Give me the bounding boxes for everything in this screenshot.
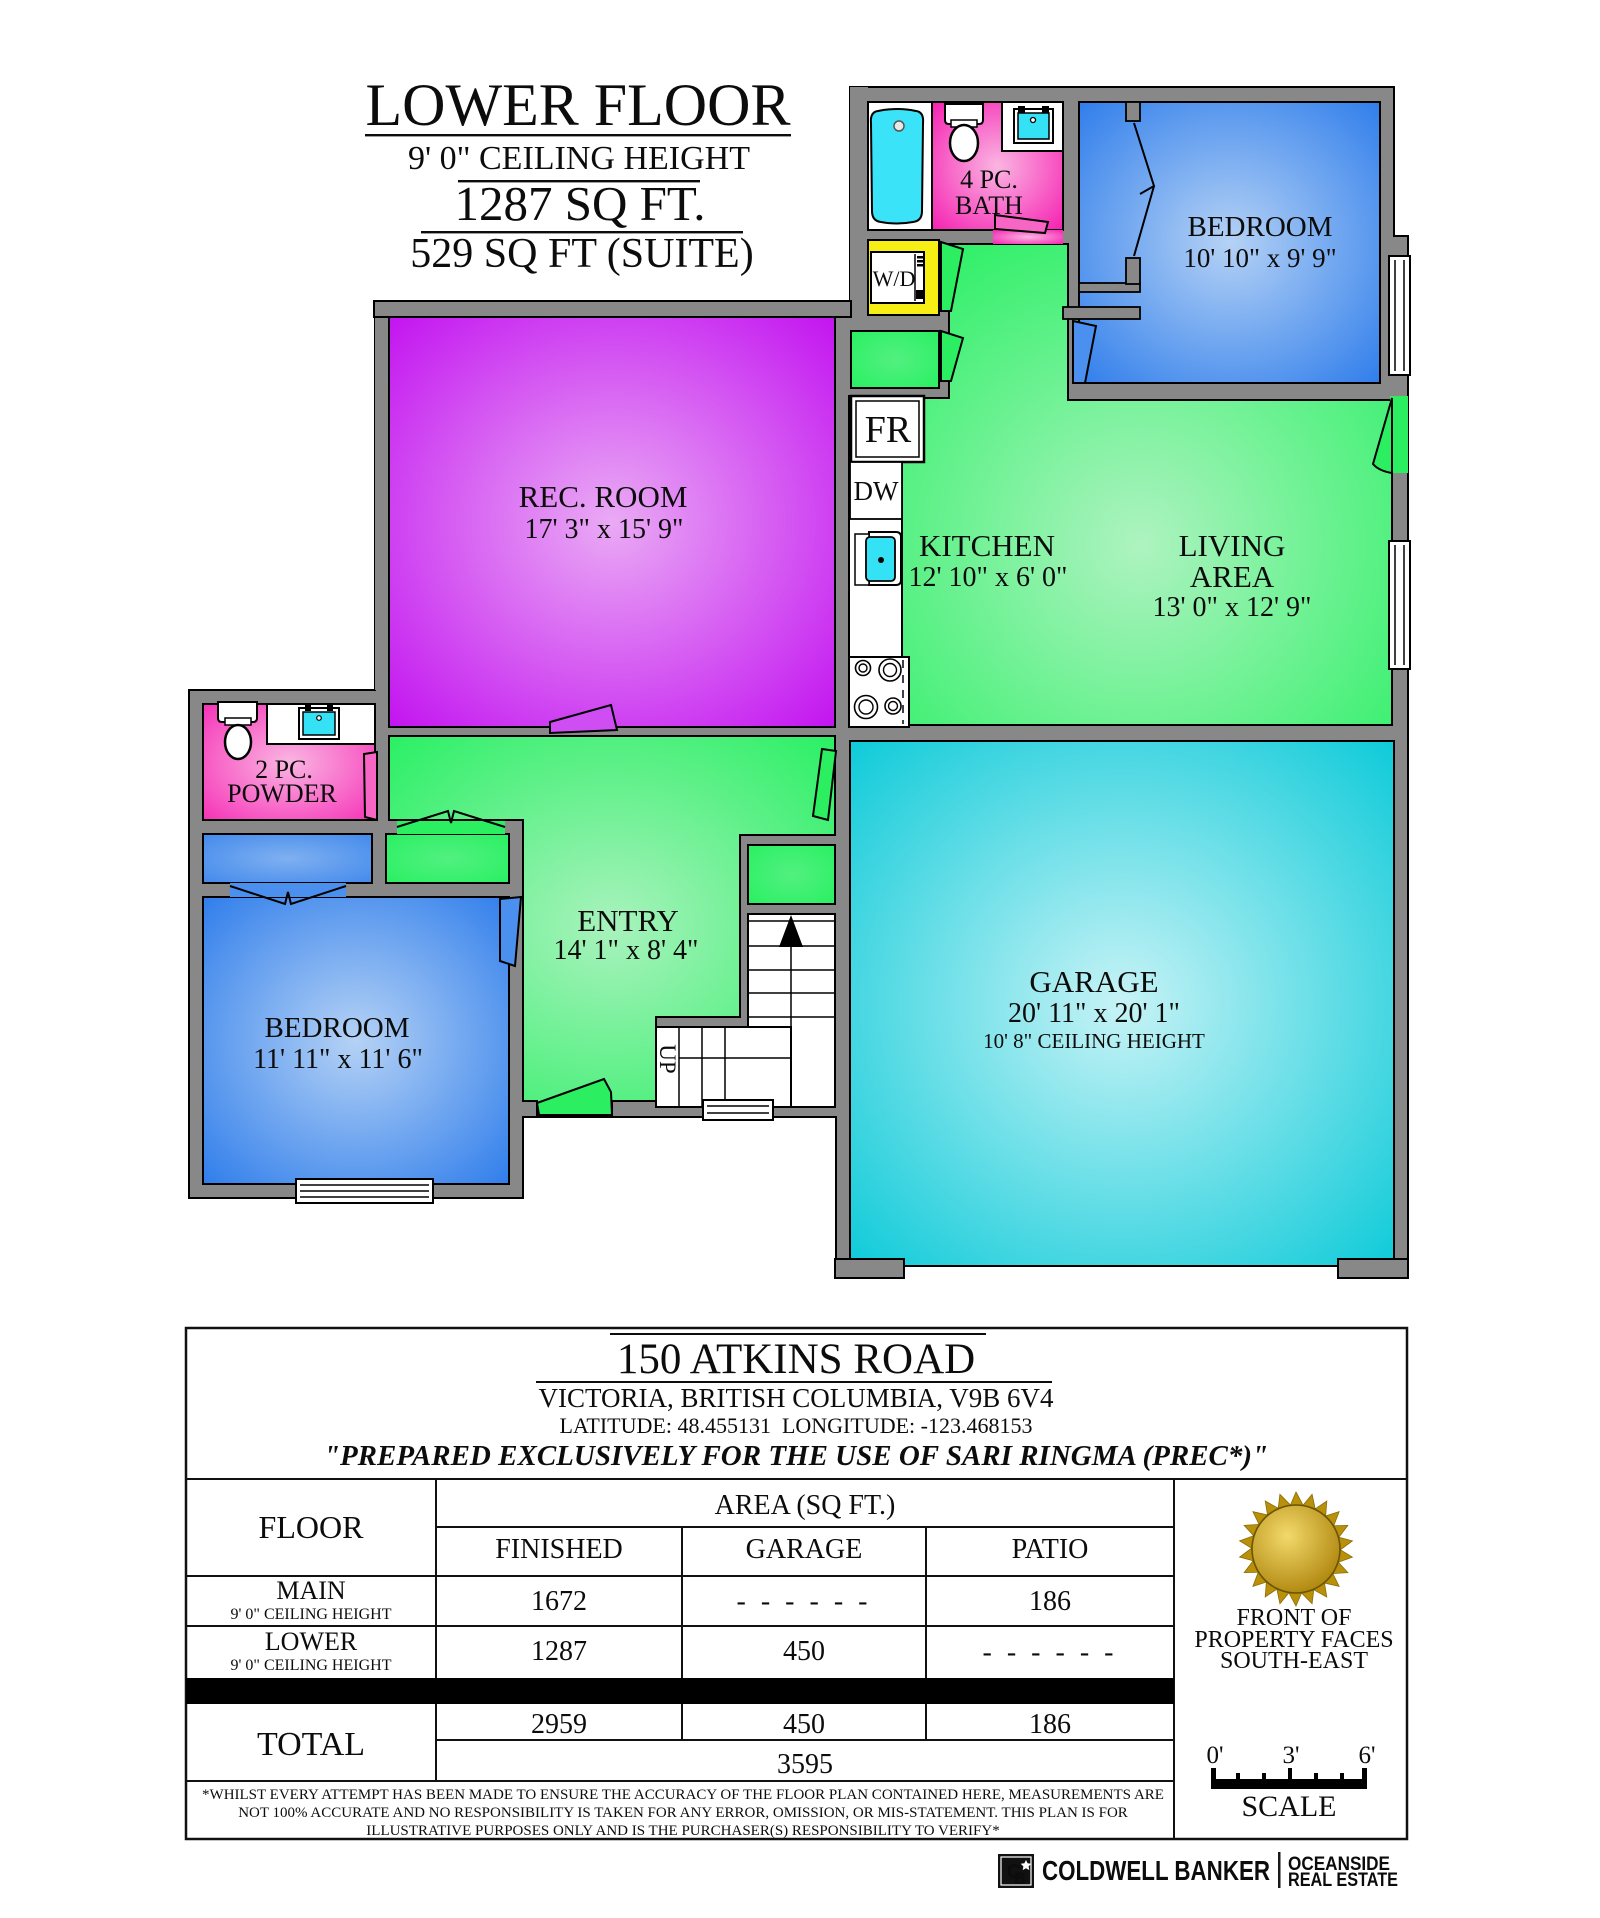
svg-text:14' 1" x 8' 4": 14' 1" x 8' 4" bbox=[554, 935, 699, 966]
svg-text:450: 450 bbox=[783, 1709, 825, 1740]
svg-text:13' 0" x 12' 9": 13' 0" x 12' 9" bbox=[1153, 592, 1312, 623]
svg-text:10' 8" CEILING HEIGHT: 10' 8" CEILING HEIGHT bbox=[983, 1029, 1205, 1053]
svg-text:PATIO: PATIO bbox=[1012, 1534, 1089, 1565]
svg-text:NOT 100% ACCURATE AND NO RESPO: NOT 100% ACCURATE AND NO RESPONSIBILITY … bbox=[238, 1805, 1128, 1821]
svg-text:UP: UP bbox=[655, 1044, 680, 1073]
svg-text:3595: 3595 bbox=[777, 1749, 833, 1780]
svg-text:*WHILST EVERY ATTEMPT HAS BEEN: *WHILST EVERY ATTEMPT HAS BEEN MADE TO E… bbox=[202, 1787, 1164, 1803]
svg-text:2959: 2959 bbox=[531, 1709, 587, 1740]
svg-text:MAIN: MAIN bbox=[276, 1576, 346, 1605]
svg-text:FR: FR bbox=[865, 409, 912, 451]
svg-text:LOWER: LOWER bbox=[265, 1627, 358, 1656]
svg-text:B: B bbox=[1014, 1869, 1026, 1888]
svg-text:0': 0' bbox=[1206, 1742, 1223, 1769]
svg-text:- - - - - -: - - - - - - bbox=[983, 1637, 1118, 1668]
svg-text:529 SQ FT (SUITE): 529 SQ FT (SUITE) bbox=[410, 231, 753, 277]
svg-text:9' 0" CEILING HEIGHT: 9' 0" CEILING HEIGHT bbox=[231, 1606, 392, 1623]
svg-text:DW: DW bbox=[854, 476, 899, 506]
svg-text:COLDWELL BANKER: COLDWELL BANKER bbox=[1042, 1855, 1270, 1886]
svg-text:KITCHEN: KITCHEN bbox=[919, 528, 1055, 563]
svg-text:ENTRY: ENTRY bbox=[577, 903, 679, 938]
svg-text:1287 SQ FT.: 1287 SQ FT. bbox=[455, 176, 706, 231]
svg-text:W/D: W/D bbox=[873, 266, 916, 291]
svg-text:LIVING: LIVING bbox=[1179, 528, 1286, 563]
svg-text:12' 10" x 6' 0": 12' 10" x 6' 0" bbox=[909, 562, 1068, 593]
svg-text:186: 186 bbox=[1029, 1586, 1071, 1617]
svg-text:TOTAL: TOTAL bbox=[257, 1726, 365, 1763]
svg-text:6': 6' bbox=[1358, 1742, 1375, 1769]
svg-text:BEDROOM: BEDROOM bbox=[1187, 211, 1332, 243]
svg-text:GARAGE: GARAGE bbox=[1029, 964, 1158, 999]
svg-text:FLOOR: FLOOR bbox=[259, 1509, 365, 1545]
svg-text:SCALE: SCALE bbox=[1241, 1790, 1336, 1823]
svg-text:AREA (SQ FT.): AREA (SQ FT.) bbox=[715, 1490, 896, 1521]
svg-text:VICTORIA, BRITISH COLUMBIA, V9: VICTORIA, BRITISH COLUMBIA, V9B 6V4 bbox=[538, 1383, 1054, 1413]
svg-text:3': 3' bbox=[1282, 1742, 1299, 1769]
svg-text:LATITUDE: 48.455131 LONGITUDE: LATITUDE: 48.455131 LONGITUDE: -123.4681… bbox=[560, 1413, 1033, 1438]
svg-text:10' 10" x 9' 9": 10' 10" x 9' 9" bbox=[1183, 243, 1336, 273]
svg-text:BATH: BATH bbox=[955, 191, 1023, 220]
svg-text:4 PC.: 4 PC. bbox=[960, 165, 1018, 194]
svg-text:ILLUSTRATIVE PURPOSES ONLY AND: ILLUSTRATIVE PURPOSES ONLY AND IS THE PU… bbox=[366, 1823, 999, 1839]
svg-text:186: 186 bbox=[1029, 1709, 1071, 1740]
svg-text:REC. ROOM: REC. ROOM bbox=[519, 479, 688, 514]
svg-text:9' 0" CEILING HEIGHT: 9' 0" CEILING HEIGHT bbox=[231, 1657, 392, 1674]
svg-text:REAL ESTATE: REAL ESTATE bbox=[1288, 1870, 1398, 1891]
svg-text:"PREPARED EXCLUSIVELY FOR THE: "PREPARED EXCLUSIVELY FOR THE USE OF SAR… bbox=[324, 1440, 1268, 1472]
svg-text:FINISHED: FINISHED bbox=[495, 1534, 623, 1565]
svg-text:1287: 1287 bbox=[531, 1636, 587, 1667]
svg-text:BEDROOM: BEDROOM bbox=[264, 1012, 409, 1044]
svg-text:17' 3" x 15' 9": 17' 3" x 15' 9" bbox=[525, 514, 684, 545]
svg-text:AREA: AREA bbox=[1190, 559, 1275, 594]
svg-text:LOWER FLOOR: LOWER FLOOR bbox=[366, 72, 791, 138]
svg-text:150 ATKINS ROAD: 150 ATKINS ROAD bbox=[617, 1336, 975, 1383]
svg-text:9' 0" CEILING HEIGHT: 9' 0" CEILING HEIGHT bbox=[408, 140, 750, 177]
svg-text:11' 11" x 11' 6": 11' 11" x 11' 6" bbox=[253, 1044, 423, 1075]
svg-text:- - - - - -: - - - - - - bbox=[737, 1586, 872, 1617]
svg-text:POWDER: POWDER bbox=[227, 779, 337, 808]
svg-text:20' 11" x 20' 1": 20' 11" x 20' 1" bbox=[1008, 998, 1180, 1029]
svg-text:1672: 1672 bbox=[531, 1586, 587, 1617]
svg-text:SOUTH-EAST: SOUTH-EAST bbox=[1220, 1648, 1368, 1674]
svg-text:450: 450 bbox=[783, 1636, 825, 1667]
svg-text:GARAGE: GARAGE bbox=[746, 1534, 863, 1565]
